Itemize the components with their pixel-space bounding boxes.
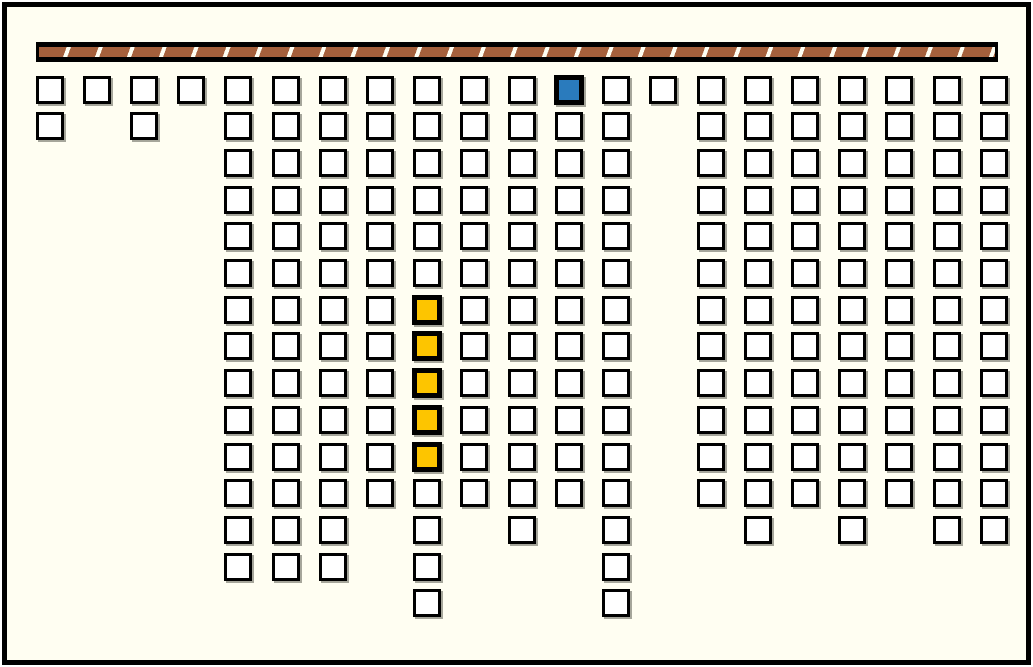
grid-cell[interactable] — [933, 296, 961, 324]
grid-cell[interactable] — [366, 443, 394, 471]
grid-cell[interactable] — [980, 516, 1008, 544]
grid-cell[interactable] — [744, 369, 772, 397]
grid-cell[interactable] — [980, 186, 1008, 214]
grid-cell[interactable] — [366, 76, 394, 104]
grid-cell[interactable] — [555, 186, 583, 214]
grid-cell[interactable] — [508, 259, 536, 287]
grid-cell[interactable] — [602, 479, 630, 507]
grid-cell[interactable] — [319, 553, 347, 581]
grid-cell[interactable] — [697, 222, 725, 250]
grid-cell[interactable] — [460, 479, 488, 507]
grid-cell[interactable] — [885, 186, 913, 214]
grid-cell[interactable] — [224, 443, 252, 471]
grid-cell[interactable] — [319, 186, 347, 214]
grid-cell[interactable] — [980, 149, 1008, 177]
grid-cell[interactable] — [980, 332, 1008, 360]
grid-cell[interactable] — [838, 112, 866, 140]
grid-cell[interactable] — [177, 76, 205, 104]
grid-cell[interactable] — [697, 112, 725, 140]
grid-cell[interactable] — [224, 112, 252, 140]
grid-cell[interactable] — [272, 112, 300, 140]
grid-cell[interactable] — [838, 186, 866, 214]
grid-cell[interactable] — [272, 76, 300, 104]
grid-cell[interactable] — [272, 443, 300, 471]
grid-cell[interactable] — [319, 296, 347, 324]
grid-cell[interactable] — [36, 112, 64, 140]
grid-cell[interactable] — [366, 296, 394, 324]
grid-cell[interactable] — [272, 259, 300, 287]
grid-cell[interactable] — [697, 479, 725, 507]
grid-cell[interactable] — [791, 443, 819, 471]
grid-cell[interactable] — [508, 332, 536, 360]
grid-cell[interactable] — [366, 369, 394, 397]
grid-cell[interactable] — [838, 406, 866, 434]
grid-cell[interactable] — [413, 516, 441, 544]
grid-cell[interactable] — [602, 76, 630, 104]
grid-cell[interactable] — [838, 76, 866, 104]
grid-cell[interactable] — [697, 406, 725, 434]
grid-cell[interactable] — [602, 259, 630, 287]
grid-cell[interactable] — [366, 149, 394, 177]
grid-cell[interactable] — [838, 149, 866, 177]
grid-cell[interactable] — [791, 406, 819, 434]
grid-cell[interactable] — [838, 479, 866, 507]
grid-cell[interactable] — [838, 296, 866, 324]
grid-cell[interactable] — [460, 332, 488, 360]
grid-cell[interactable] — [319, 149, 347, 177]
grid-cell[interactable] — [460, 112, 488, 140]
grid-cell[interactable] — [508, 296, 536, 324]
grid-cell[interactable] — [224, 332, 252, 360]
grid-cell[interactable] — [697, 149, 725, 177]
board-page — [0, 0, 1033, 667]
grid-cell[interactable] — [224, 186, 252, 214]
grid-cell[interactable] — [224, 296, 252, 324]
yellow-cell[interactable] — [412, 442, 442, 472]
grid-cell[interactable] — [744, 149, 772, 177]
grid-cell[interactable] — [697, 259, 725, 287]
grid-cell[interactable] — [319, 222, 347, 250]
grid-cell[interactable] — [885, 369, 913, 397]
grid-cell[interactable] — [413, 76, 441, 104]
grid-cell[interactable] — [36, 76, 64, 104]
grid-cell[interactable] — [366, 186, 394, 214]
grid-cell[interactable] — [885, 406, 913, 434]
grid-cell[interactable] — [272, 406, 300, 434]
grid-cell[interactable] — [697, 76, 725, 104]
grid-cell[interactable] — [602, 222, 630, 250]
grid-cell[interactable] — [224, 222, 252, 250]
grid-cell[interactable] — [272, 332, 300, 360]
grid-cell[interactable] — [885, 443, 913, 471]
grid-cell[interactable] — [697, 369, 725, 397]
grid-cell[interactable] — [933, 149, 961, 177]
grid-cell[interactable] — [744, 516, 772, 544]
grid-cell[interactable] — [885, 332, 913, 360]
grid-cell[interactable] — [933, 443, 961, 471]
grid-cell[interactable] — [555, 149, 583, 177]
grid-cell[interactable] — [791, 222, 819, 250]
grid-cell[interactable] — [602, 553, 630, 581]
grid-cell[interactable] — [130, 76, 158, 104]
grid-cell[interactable] — [224, 516, 252, 544]
grid-cell[interactable] — [744, 186, 772, 214]
grid-cell[interactable] — [697, 443, 725, 471]
grid-cell[interactable] — [413, 479, 441, 507]
grid-cell[interactable] — [413, 259, 441, 287]
grid-cell[interactable] — [319, 112, 347, 140]
grid-cell[interactable] — [980, 406, 1008, 434]
grid-cell[interactable] — [413, 553, 441, 581]
grid-cell[interactable] — [508, 222, 536, 250]
grid-cell[interactable] — [460, 149, 488, 177]
grid-cell[interactable] — [319, 332, 347, 360]
grid-cell[interactable] — [980, 76, 1008, 104]
grid-cell[interactable] — [602, 369, 630, 397]
grid-cell[interactable] — [885, 112, 913, 140]
grid-cell[interactable] — [933, 186, 961, 214]
grid-cell[interactable] — [933, 479, 961, 507]
grid-cell[interactable] — [555, 332, 583, 360]
grid-cell[interactable] — [602, 149, 630, 177]
grid-cell[interactable] — [130, 112, 158, 140]
grid-cell[interactable] — [649, 76, 677, 104]
grid-cell[interactable] — [933, 222, 961, 250]
grid-cell[interactable] — [224, 553, 252, 581]
grid-cell[interactable] — [224, 479, 252, 507]
grid-cell[interactable] — [838, 516, 866, 544]
grid-cell[interactable] — [319, 516, 347, 544]
grid-cell[interactable] — [791, 149, 819, 177]
grid-cell[interactable] — [508, 149, 536, 177]
grid-cell[interactable] — [366, 112, 394, 140]
grid-cell[interactable] — [460, 406, 488, 434]
grid-cell[interactable] — [744, 259, 772, 287]
grid-cell[interactable] — [555, 296, 583, 324]
grid-cell[interactable] — [508, 112, 536, 140]
grid-cell[interactable] — [272, 516, 300, 544]
grid-cell[interactable] — [508, 369, 536, 397]
grid-cell[interactable] — [602, 112, 630, 140]
grid-cell[interactable] — [744, 112, 772, 140]
grid-cell[interactable] — [508, 76, 536, 104]
grid-cell[interactable] — [602, 296, 630, 324]
grid-cell[interactable] — [460, 186, 488, 214]
grid-cell[interactable] — [460, 259, 488, 287]
grid-cell[interactable] — [744, 296, 772, 324]
grid-cell[interactable] — [980, 443, 1008, 471]
grid-cell[interactable] — [272, 479, 300, 507]
grid-cell[interactable] — [838, 443, 866, 471]
grid-cell[interactable] — [602, 186, 630, 214]
grid-cell[interactable] — [366, 222, 394, 250]
yellow-cell[interactable] — [412, 405, 442, 435]
grid-cell[interactable] — [838, 222, 866, 250]
grid-cell[interactable] — [508, 479, 536, 507]
grid-cell[interactable] — [555, 222, 583, 250]
grid-cell[interactable] — [933, 369, 961, 397]
grid-cell[interactable] — [885, 76, 913, 104]
grid-cell[interactable] — [791, 479, 819, 507]
grid-cell[interactable] — [838, 369, 866, 397]
grid-cell[interactable] — [744, 76, 772, 104]
grid-cell[interactable] — [224, 259, 252, 287]
grid-cell[interactable] — [697, 332, 725, 360]
grid-cell[interactable] — [838, 332, 866, 360]
grid-cell[interactable] — [272, 186, 300, 214]
grid-cell[interactable] — [885, 149, 913, 177]
grid-cell[interactable] — [602, 443, 630, 471]
grid-cell[interactable] — [224, 149, 252, 177]
grid-cell[interactable] — [791, 76, 819, 104]
grid-cell[interactable] — [413, 112, 441, 140]
yellow-cell[interactable] — [412, 331, 442, 361]
grid-cell[interactable] — [272, 553, 300, 581]
grid-cell[interactable] — [508, 516, 536, 544]
blue-cell[interactable] — [554, 75, 584, 105]
grid-cell[interactable] — [555, 406, 583, 434]
grid-cell[interactable] — [460, 76, 488, 104]
grid-cell[interactable] — [366, 332, 394, 360]
grid-cell[interactable] — [933, 332, 961, 360]
grid-cell[interactable] — [83, 76, 111, 104]
grid-cell[interactable] — [980, 296, 1008, 324]
grid-cell[interactable] — [508, 406, 536, 434]
yellow-cell[interactable] — [412, 295, 442, 325]
grid-cell[interactable] — [366, 259, 394, 287]
grid-cell[interactable] — [980, 112, 1008, 140]
yellow-cell[interactable] — [412, 368, 442, 398]
grid-cell[interactable] — [460, 369, 488, 397]
grid-cell[interactable] — [224, 369, 252, 397]
grid-cell[interactable] — [460, 222, 488, 250]
grid-cell[interactable] — [933, 112, 961, 140]
grid-cell[interactable] — [744, 443, 772, 471]
grid-cell[interactable] — [933, 516, 961, 544]
grid-cell[interactable] — [224, 406, 252, 434]
grid-cell[interactable] — [744, 222, 772, 250]
grid-cell[interactable] — [555, 369, 583, 397]
grid-cell[interactable] — [744, 406, 772, 434]
grid-cell[interactable] — [885, 259, 913, 287]
grid-cell[interactable] — [272, 222, 300, 250]
grid-cell[interactable] — [980, 369, 1008, 397]
grid-cell[interactable] — [980, 222, 1008, 250]
grid-cell[interactable] — [319, 479, 347, 507]
grid-cell[interactable] — [555, 443, 583, 471]
hatched-wall-bar — [36, 42, 998, 62]
grid-cell[interactable] — [744, 479, 772, 507]
grid-cell[interactable] — [933, 76, 961, 104]
grid-cell[interactable] — [980, 479, 1008, 507]
grid-cell[interactable] — [885, 479, 913, 507]
grid-cell[interactable] — [980, 259, 1008, 287]
grid-cell[interactable] — [319, 406, 347, 434]
grid-cell[interactable] — [366, 406, 394, 434]
grid-cell[interactable] — [319, 369, 347, 397]
grid-cell[interactable] — [791, 186, 819, 214]
grid-cell[interactable] — [885, 296, 913, 324]
grid-cell[interactable] — [555, 112, 583, 140]
grid-cell[interactable] — [744, 332, 772, 360]
grid-cell[interactable] — [272, 149, 300, 177]
grid-cell[interactable] — [272, 296, 300, 324]
grid-cell[interactable] — [413, 222, 441, 250]
grid-cell[interactable] — [933, 406, 961, 434]
grid-cell[interactable] — [697, 186, 725, 214]
grid-cell[interactable] — [508, 443, 536, 471]
grid-cell[interactable] — [413, 589, 441, 617]
grid-cell[interactable] — [460, 443, 488, 471]
grid-cell[interactable] — [319, 76, 347, 104]
grid-cell[interactable] — [791, 369, 819, 397]
grid-cell[interactable] — [602, 589, 630, 617]
grid-cell[interactable] — [791, 112, 819, 140]
grid-cell[interactable] — [319, 443, 347, 471]
grid-cell[interactable] — [366, 479, 394, 507]
grid-cell[interactable] — [272, 369, 300, 397]
grid-cell[interactable] — [224, 76, 252, 104]
grid-cell[interactable] — [319, 259, 347, 287]
grid-cell[interactable] — [791, 332, 819, 360]
grid-cell[interactable] — [791, 296, 819, 324]
grid-cell[interactable] — [602, 516, 630, 544]
grid-cell[interactable] — [555, 259, 583, 287]
grid-cell[interactable] — [885, 222, 913, 250]
grid-cell[interactable] — [460, 296, 488, 324]
grid-cell[interactable] — [555, 479, 583, 507]
grid-cell[interactable] — [697, 296, 725, 324]
grid-cell[interactable] — [413, 186, 441, 214]
grid-cell[interactable] — [838, 259, 866, 287]
grid-cell[interactable] — [602, 332, 630, 360]
grid-cell[interactable] — [791, 259, 819, 287]
grid-cell[interactable] — [933, 259, 961, 287]
grid-cell[interactable] — [413, 149, 441, 177]
grid-cell[interactable] — [602, 406, 630, 434]
grid-cell[interactable] — [508, 186, 536, 214]
